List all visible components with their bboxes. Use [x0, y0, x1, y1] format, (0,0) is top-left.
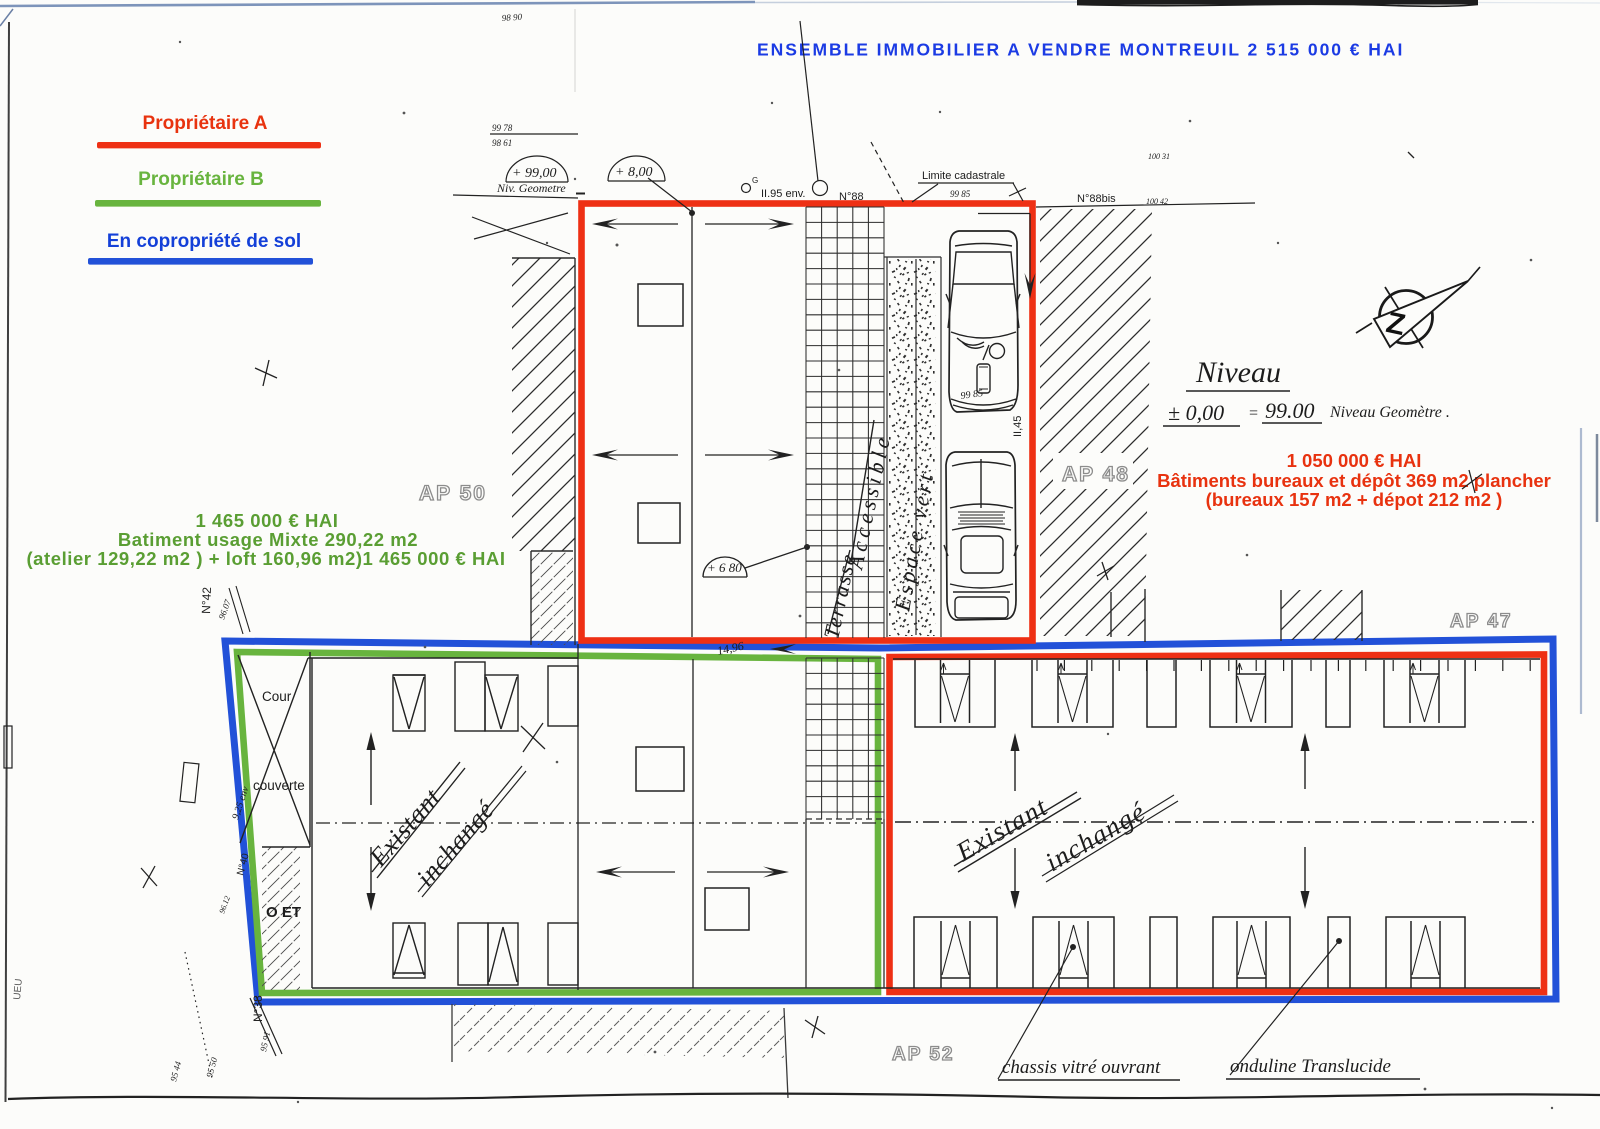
svg-text:(atelier 129,22 m2 ) + loft 16: (atelier 129,22 m2 ) + loft 160,96 m2)1 …	[26, 548, 505, 569]
svg-text:G: G	[752, 176, 758, 185]
svg-text:1 465 000 € HAI: 1 465 000 € HAI	[196, 510, 339, 531]
svg-text:Batiment usage Mixte 290,22 m2: Batiment usage Mixte 290,22 m2	[118, 529, 418, 550]
svg-text:100 31: 100 31	[1148, 152, 1170, 161]
svg-text:couverte: couverte	[253, 778, 305, 793]
svg-text:98 90: 98 90	[501, 12, 522, 23]
svg-text:AP 47: AP 47	[1450, 611, 1512, 632]
svg-text:95 44: 95 44	[168, 1060, 183, 1083]
svg-text:UEU: UEU	[12, 978, 25, 1000]
svg-text:Propriétaire A: Propriétaire A	[143, 113, 268, 134]
svg-text:onduline Translucide: onduline Translucide	[1230, 1056, 1391, 1077]
svg-text:99 85: 99 85	[950, 189, 971, 199]
svg-text:Bâtiments bureaux et dépôt 369: Bâtiments bureaux et dépôt 369 m2 planch…	[1157, 470, 1551, 491]
svg-text:Z: Z	[1383, 306, 1408, 342]
svg-text:O ET: O ET	[266, 904, 301, 921]
svg-text:95 50: 95 50	[204, 1056, 219, 1079]
svg-text:Niv. Geometre: Niv. Geometre	[496, 181, 566, 195]
svg-text:N°88bis: N°88bis	[1077, 193, 1116, 205]
svg-text:N°88: N°88	[839, 191, 864, 203]
svg-text:95 91: 95 91	[258, 1031, 272, 1053]
svg-text:N°38: N°38	[251, 995, 265, 1022]
svg-text:96.12: 96.12	[217, 895, 232, 915]
svg-text:99 85: 99 85	[960, 388, 984, 402]
svg-text:+ 6 80: + 6 80	[707, 560, 742, 575]
svg-text:AP 50: AP 50	[419, 482, 487, 505]
svg-text:II.95 env.: II.95 env.	[761, 188, 805, 200]
svg-text:± 0,00: ± 0,00	[1168, 400, 1224, 425]
svg-text:+ 99,00: + 99,00	[512, 166, 556, 181]
svg-text:AP 52: AP 52	[892, 1044, 954, 1065]
svg-text:II,45: II,45	[1012, 416, 1024, 437]
svg-text:Propriétaire B: Propriétaire B	[138, 169, 264, 190]
svg-text:Limite cadastrale: Limite cadastrale	[922, 170, 1005, 182]
svg-text:96.07: 96.07	[216, 598, 232, 621]
svg-text:98 61: 98 61	[492, 138, 512, 148]
svg-text:chassis vitré ouvrant: chassis vitré ouvrant	[1002, 1057, 1161, 1078]
svg-text:N°42: N°42	[199, 586, 214, 614]
svg-text:Niveau: Niveau	[1195, 356, 1281, 389]
svg-text:100 42: 100 42	[1146, 197, 1168, 206]
svg-text:(bureaux 157 m2 + dépot 212 m: (bureaux 157 m2 + dépot 212 m2 )	[1206, 489, 1503, 510]
svg-text:ENSEMBLE IMMOBILIER A VENDRE M: ENSEMBLE IMMOBILIER A VENDRE MONTREUIL 2…	[757, 40, 1404, 60]
svg-text:inchangé: inchangé	[1040, 796, 1151, 877]
svg-text:En copropriété de sol: En copropriété de sol	[107, 231, 301, 252]
svg-text:Niveau Geomètre .: Niveau Geomètre .	[1329, 404, 1450, 421]
svg-text:+ 8,00: + 8,00	[615, 165, 652, 180]
svg-text:Cour: Cour	[262, 689, 292, 704]
svg-text:99.00: 99.00	[1265, 398, 1315, 423]
svg-text:1 050 000 € HAI: 1 050 000 € HAI	[1287, 450, 1422, 471]
svg-text:99 78: 99 78	[492, 123, 513, 133]
svg-text:Existant: Existant	[950, 791, 1053, 868]
svg-text:AP 48: AP 48	[1062, 463, 1130, 486]
svg-text:=: =	[1248, 405, 1259, 422]
